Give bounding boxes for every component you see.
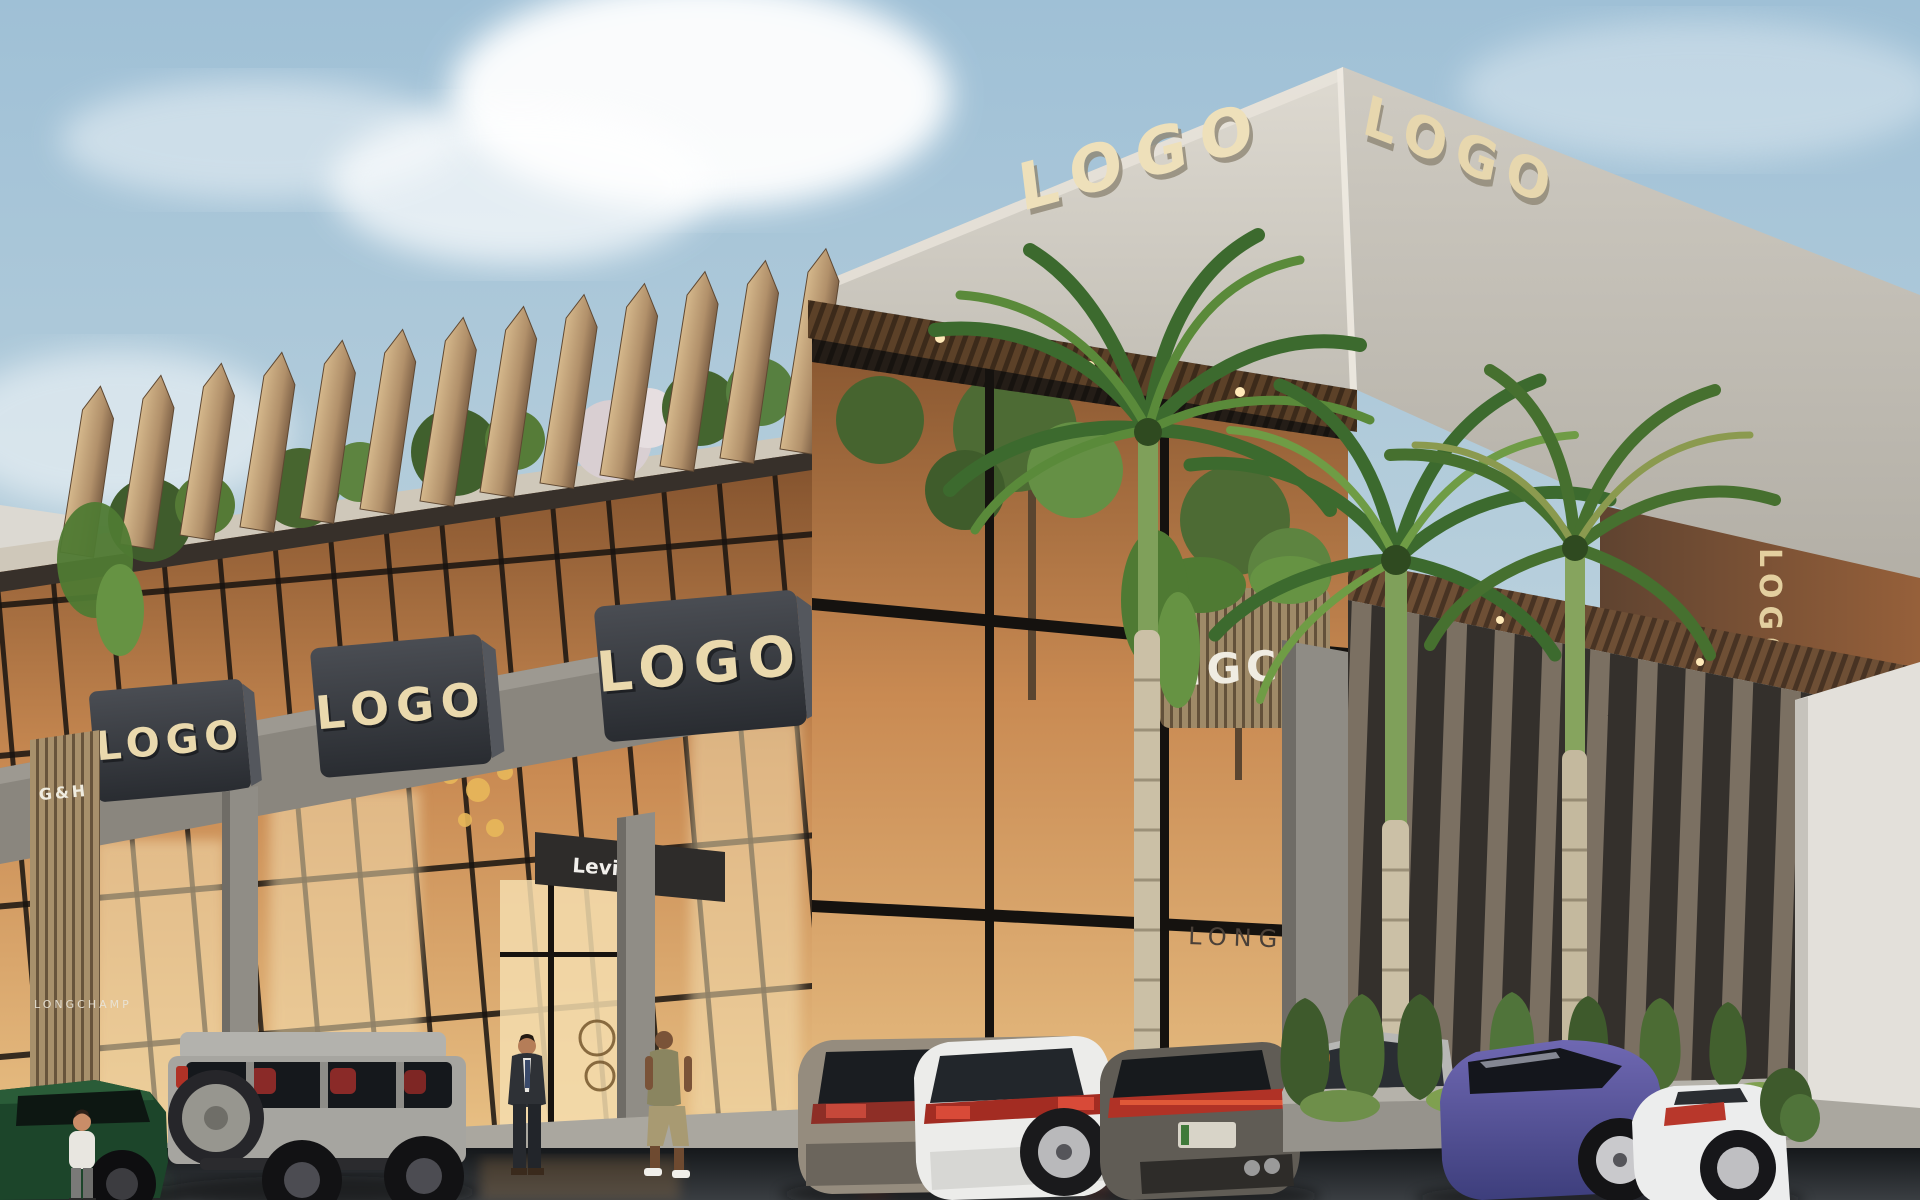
longchamp-small: LONGCHAMP xyxy=(34,998,132,1011)
car-white-cayenne xyxy=(914,1036,1118,1200)
mall-exterior-render: LOGO LOGO LOGO LOGO LOGO xyxy=(0,0,1920,1200)
storefront-sign-3: LOGO LOGO xyxy=(591,588,821,743)
storefront-sign-1: LOGO LOGO xyxy=(88,678,262,803)
storefront-sign-2: LOGO LOGO xyxy=(310,633,506,779)
car-urus xyxy=(1100,1042,1300,1200)
scene-svg: LOGO LOGO LOGO LOGO LOGO xyxy=(0,0,1920,1200)
